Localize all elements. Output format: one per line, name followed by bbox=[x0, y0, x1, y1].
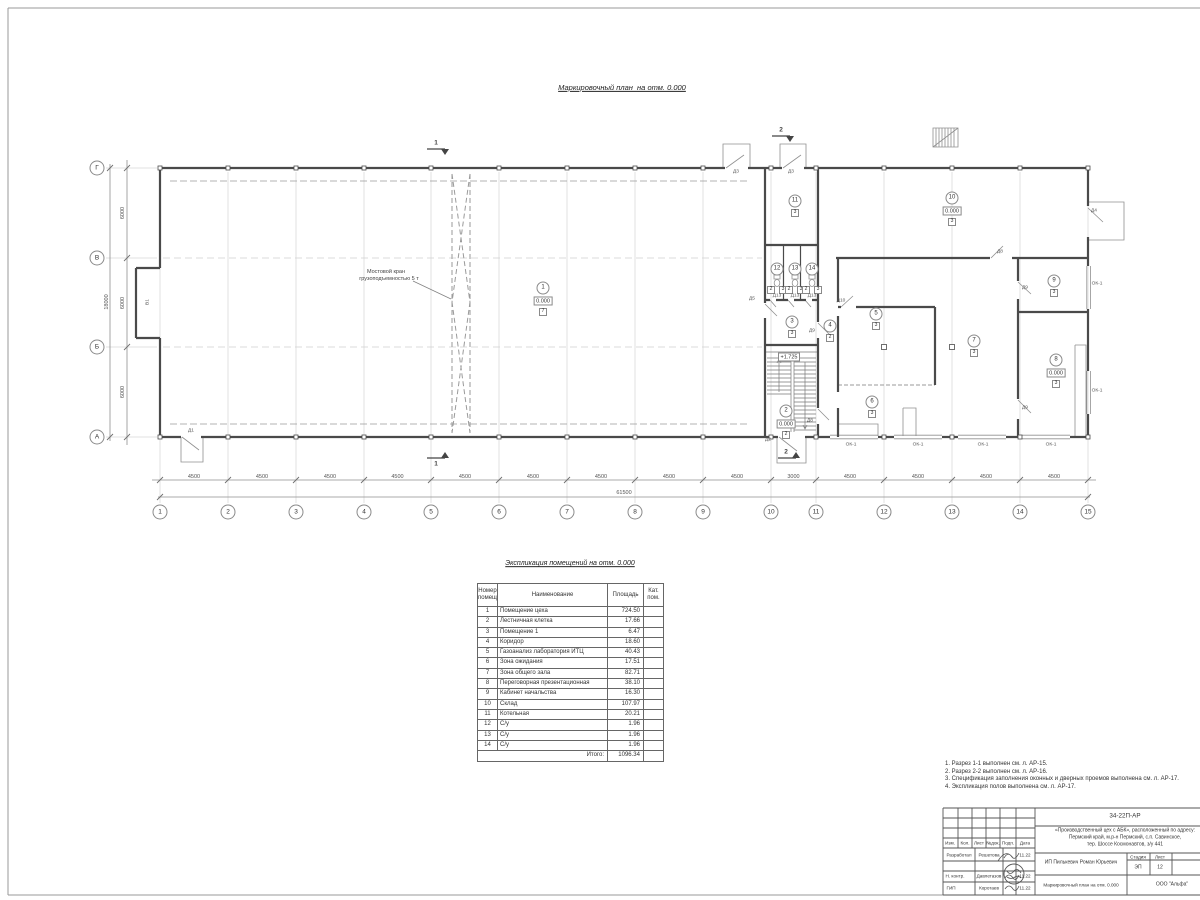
titleblock-role: Н. контр. bbox=[946, 873, 965, 878]
table-cell-cat bbox=[644, 668, 664, 678]
window-label: ОК-1 bbox=[1092, 281, 1103, 286]
titleblock-org-name: ООО "Альфа" bbox=[1156, 882, 1188, 888]
titleblock-name: Решетова bbox=[978, 852, 999, 857]
door-label: Д5 bbox=[749, 296, 755, 301]
window-label: ОК-1 bbox=[978, 442, 989, 447]
door-label: Д9 bbox=[809, 328, 815, 333]
door-label: Д13 bbox=[773, 293, 782, 298]
dim-total-label: 18000 bbox=[104, 294, 110, 309]
section-marker: 2 bbox=[784, 448, 788, 455]
grid-col-bubble: 10 bbox=[764, 505, 779, 520]
table-cell-area: 17.51 bbox=[608, 658, 644, 668]
table-cell-area: 38.10 bbox=[608, 679, 644, 689]
dim-label: 4500 bbox=[459, 473, 471, 479]
titleblock-stage-value: ЭП bbox=[1134, 865, 1141, 871]
table-row: 2Лестничная клетка17.66 bbox=[478, 617, 664, 627]
door-label: Д10 bbox=[837, 298, 846, 303]
titleblock-stage-label: Стадия bbox=[1130, 854, 1146, 859]
room-marker: 5 bbox=[870, 308, 883, 321]
table-cell-name: Газоанализ лаборатория ИТЦ bbox=[498, 648, 608, 658]
dim-label: 6000 bbox=[120, 207, 126, 219]
room-marker: 10 bbox=[946, 192, 959, 205]
titleblock-col-header: Изм. bbox=[945, 840, 955, 845]
table-cell-name: Переговорная презентационная bbox=[498, 679, 608, 689]
dim-label: 4500 bbox=[188, 473, 200, 479]
table-cell-name: Помещение 1 bbox=[498, 627, 608, 637]
titleblock-date: 11.22 bbox=[1019, 852, 1030, 857]
table-cell-cat bbox=[644, 730, 664, 740]
window-label: ОК-1 bbox=[1046, 442, 1057, 447]
note-4: 4. Экспликация полов выполнена см. л. АР… bbox=[945, 784, 1200, 792]
total-value: 1096.34 bbox=[608, 751, 644, 762]
titleblock-list-label: Лист bbox=[1155, 854, 1165, 859]
table-cell-num: 5 bbox=[478, 648, 498, 658]
table-cell-num: 2 bbox=[478, 617, 498, 627]
general-notes: 1. Разрез 1-1 выполнен см. л. АР-15. 2. … bbox=[945, 761, 1200, 791]
table-row: 14С/у1.96 bbox=[478, 740, 664, 750]
room-marker: 7 bbox=[968, 335, 981, 348]
table-cell-cat bbox=[644, 658, 664, 668]
dim-label: 4500 bbox=[256, 473, 268, 479]
grid-col-bubble: 2 bbox=[221, 505, 236, 520]
room-marker: 13 bbox=[789, 263, 802, 276]
room-elevation: 0.000 bbox=[777, 419, 796, 428]
table-cell-name: Лестничная клетка bbox=[498, 617, 608, 627]
table-row: 9Кабинет начальства16.30 bbox=[478, 689, 664, 699]
table-cell-num: 3 bbox=[478, 627, 498, 637]
room-marker: 11 bbox=[789, 195, 802, 208]
room-elevation: 0.000 bbox=[943, 206, 962, 215]
crane-label: грузоподъемностью 5 т bbox=[359, 276, 419, 282]
door-label: Д3 bbox=[788, 169, 794, 174]
titleblock-role: ГИП bbox=[946, 885, 955, 890]
room-marker: 2 bbox=[780, 405, 793, 418]
plan-title: Маркировочный план на отм. 0.000 bbox=[558, 84, 686, 92]
table-cell-num: 7 bbox=[478, 668, 498, 678]
dim-label: 6000 bbox=[120, 386, 126, 398]
table-cell-area: 107.97 bbox=[608, 699, 644, 709]
stair-elevation-label: +1.725 bbox=[778, 352, 800, 361]
table-cell-name: Кабинет начальства bbox=[498, 689, 608, 699]
table-row: 7Зона общего зала82.71 bbox=[478, 668, 664, 678]
table-cell-cat bbox=[644, 699, 664, 709]
room-elevation: 0.000 bbox=[534, 296, 553, 305]
room-marker: 1 bbox=[537, 282, 550, 295]
door-label: Д3 bbox=[733, 169, 739, 174]
room-marker: 12 bbox=[771, 263, 784, 276]
col-header-number-line2: помещ. bbox=[478, 595, 497, 602]
table-cell-area: 16.30 bbox=[608, 689, 644, 699]
room-marker: 14 bbox=[806, 263, 819, 276]
dim-label: 4500 bbox=[391, 473, 403, 479]
section-marker: 1 bbox=[434, 139, 438, 146]
grid-col-bubble: 7 bbox=[560, 505, 575, 520]
table-cell-num: 11 bbox=[478, 709, 498, 719]
titleblock-col-header: Кол. bbox=[960, 840, 969, 845]
table-cell-area: 724.50 bbox=[608, 607, 644, 617]
table-cell-num: 13 bbox=[478, 730, 498, 740]
table-cell-num: 4 bbox=[478, 637, 498, 647]
table-cell-area: 20.21 bbox=[608, 709, 644, 719]
col-header-number-line1: Номер bbox=[478, 588, 497, 595]
grid-col-bubble: 3 bbox=[289, 505, 304, 520]
door-label: Д13 bbox=[808, 293, 817, 298]
table-cell-num: 12 bbox=[478, 720, 498, 730]
titleblock-list-value: 12 bbox=[1157, 865, 1163, 871]
col-header-area: Площадь bbox=[608, 584, 644, 607]
dim-label: 4500 bbox=[324, 473, 336, 479]
dim-label: 3000 bbox=[787, 473, 799, 479]
dim-label: 6000 bbox=[120, 296, 126, 308]
room-category: 3 bbox=[791, 209, 799, 217]
table-cell-cat bbox=[644, 627, 664, 637]
dim-total-label: 61500 bbox=[616, 490, 631, 496]
grid-col-bubble: 9 bbox=[696, 505, 711, 520]
grid-col-bubble: 13 bbox=[945, 505, 960, 520]
table-cell-area: 6.47 bbox=[608, 627, 644, 637]
table-cell-name: С/у bbox=[498, 720, 608, 730]
titleblock-col-header: Лист bbox=[974, 840, 984, 845]
room-category: 3 bbox=[868, 410, 876, 418]
grid-col-bubble: 15 bbox=[1081, 505, 1096, 520]
gate-label: В1 bbox=[145, 299, 150, 305]
total-label: Итого: bbox=[478, 751, 608, 762]
grid-col-bubble: 1 bbox=[153, 505, 168, 520]
table-cell-cat bbox=[644, 607, 664, 617]
door-label: Д4 bbox=[1091, 208, 1097, 213]
table-cell-cat bbox=[644, 648, 664, 658]
titleblock-name: Давлетазов bbox=[977, 873, 1002, 878]
table-cell-cat bbox=[644, 720, 664, 730]
table-cell-name: Склад bbox=[498, 699, 608, 709]
room-marker: 4 bbox=[824, 320, 837, 333]
table-cell-num: 8 bbox=[478, 679, 498, 689]
titleblock-doc-number: 34-22П-АР bbox=[1109, 814, 1140, 821]
table-row: 1Помещение цеха724.50 bbox=[478, 607, 664, 617]
table-cell-area: 17.66 bbox=[608, 617, 644, 627]
table-row: 13С/у1.96 bbox=[478, 730, 664, 740]
table-row: 10Склад107.97 bbox=[478, 699, 664, 709]
crane-label: Мостовой кран bbox=[367, 269, 405, 275]
table-cell-area: 1.96 bbox=[608, 740, 644, 750]
titleblock-col-header: №док. bbox=[986, 840, 999, 845]
room-category: 3 bbox=[788, 330, 796, 338]
table-row: 5Газоанализ лаборатория ИТЦ40.43 bbox=[478, 648, 664, 658]
door-label: Д1 bbox=[188, 428, 194, 433]
table-cell-name: Коридор bbox=[498, 637, 608, 647]
door-label: Д9 bbox=[1022, 405, 1028, 410]
grid-row-bubble: В bbox=[90, 251, 105, 266]
titleblock-name: Коротаев bbox=[979, 885, 999, 890]
door-label: Д8 bbox=[807, 418, 813, 423]
room-category: 2 bbox=[782, 431, 790, 439]
grid-col-bubble: 4 bbox=[357, 505, 372, 520]
table-cell-cat bbox=[644, 637, 664, 647]
titleblock-date: 11.22 bbox=[1019, 873, 1030, 878]
table-row: 8Переговорная презентационная38.10 bbox=[478, 679, 664, 689]
total-cat-cell bbox=[644, 751, 664, 762]
table-cell-num: 14 bbox=[478, 740, 498, 750]
note-1: 1. Разрез 1-1 выполнен см. л. АР-15. bbox=[945, 761, 1200, 769]
table-cell-cat bbox=[644, 679, 664, 689]
titleblock-client: ИП Пилькевич Роман Юрьевич bbox=[1045, 860, 1118, 866]
table-cell-name: С/у bbox=[498, 730, 608, 740]
dim-label: 4500 bbox=[663, 473, 675, 479]
table-cell-name: Помещение цеха bbox=[498, 607, 608, 617]
room-category: 2 bbox=[826, 334, 834, 342]
dim-label: 4500 bbox=[980, 473, 992, 479]
table-row: 12С/у1.96 bbox=[478, 720, 664, 730]
titleblock-sheet-title: Маркировочный план на отм. 0.000 bbox=[1043, 882, 1118, 887]
table-cell-cat bbox=[644, 689, 664, 699]
table-cell-area: 40.43 bbox=[608, 648, 644, 658]
table-total-row: Итого: 1096.34 bbox=[478, 751, 664, 762]
dim-label: 4500 bbox=[912, 473, 924, 479]
window-label: ОК-1 bbox=[1092, 388, 1103, 393]
titleblock-col-header: Дата bbox=[1020, 840, 1030, 845]
note-2: 2. Разрез 2-2 выполнен см. л. АР-16. bbox=[945, 769, 1200, 777]
room-schedule-table: Номер помещ. Наименование Площадь Кат. п… bbox=[477, 583, 664, 762]
section-marker: 2 bbox=[779, 126, 783, 133]
room-elevation: 0.000 bbox=[1047, 368, 1066, 377]
section-marker: 1 bbox=[434, 460, 438, 467]
grid-row-bubble: А bbox=[90, 430, 105, 445]
dim-label: 4500 bbox=[1048, 473, 1060, 479]
table-cell-area: 82.71 bbox=[608, 668, 644, 678]
table-cell-name: Зона ожидания bbox=[498, 658, 608, 668]
grid-col-bubble: 14 bbox=[1013, 505, 1028, 520]
table-cell-cat bbox=[644, 709, 664, 719]
table-row: 3Помещение 16.47 bbox=[478, 627, 664, 637]
titleblock-project-name: тер. Шоссе Космонавтов, з/у 441 bbox=[1087, 842, 1163, 848]
table-row: 4Коридор18.60 bbox=[478, 637, 664, 647]
col-header-cat: Кат. пом. bbox=[644, 584, 664, 607]
room-marker: 6 bbox=[866, 396, 879, 409]
grid-col-bubble: 8 bbox=[628, 505, 643, 520]
table-cell-cat bbox=[644, 740, 664, 750]
table-cell-area: 1.96 bbox=[608, 720, 644, 730]
table-cell-area: 1.96 bbox=[608, 730, 644, 740]
grid-row-bubble: Г bbox=[90, 161, 105, 176]
col-header-name: Наименование bbox=[498, 584, 608, 607]
door-label: Д13 bbox=[791, 293, 800, 298]
table-cell-num: 6 bbox=[478, 658, 498, 668]
grid-col-bubble: 11 bbox=[809, 505, 824, 520]
door-label: Д2 bbox=[765, 437, 771, 442]
col-header-cat-line1: Кат. bbox=[644, 588, 663, 595]
room-category: 3 bbox=[872, 322, 880, 330]
table-row: 11Котельная20.21 bbox=[478, 709, 664, 719]
grid-row-bubble: Б bbox=[90, 340, 105, 355]
grid-col-bubble: 5 bbox=[424, 505, 439, 520]
drawing-sheet: { "page": { "plan_title": "Маркировочный… bbox=[0, 0, 1200, 900]
titleblock-project-name: «Производственный цех с АБК», расположен… bbox=[1055, 828, 1195, 834]
room-category: 3 bbox=[1050, 289, 1058, 297]
table-cell-num: 9 bbox=[478, 689, 498, 699]
table-cell-area: 18.60 bbox=[608, 637, 644, 647]
grid-col-bubble: 6 bbox=[492, 505, 507, 520]
titleblock-col-header: Подп. bbox=[1002, 840, 1014, 845]
room-category: 3 bbox=[1052, 380, 1060, 388]
table-header-row: Номер помещ. Наименование Площадь Кат. п… bbox=[478, 584, 664, 607]
col-header-cat-line2: пом. bbox=[644, 595, 663, 602]
titleblock-date: 11.22 bbox=[1019, 885, 1030, 890]
room-category: 3 bbox=[970, 349, 978, 357]
grid-col-bubble: 12 bbox=[877, 505, 892, 520]
titleblock-role: Разработал bbox=[946, 852, 971, 857]
table-cell-name: С/у bbox=[498, 740, 608, 750]
room-category: 3 bbox=[948, 218, 956, 226]
door-label: Д8 bbox=[997, 249, 1003, 254]
dim-label: 4500 bbox=[731, 473, 743, 479]
table-title: Экспликация помещений на отм. 0.000 bbox=[505, 560, 634, 568]
window-label: ОК-1 bbox=[913, 442, 924, 447]
table-cell-num: 10 bbox=[478, 699, 498, 709]
dim-label: 4500 bbox=[595, 473, 607, 479]
table-cell-num: 1 bbox=[478, 607, 498, 617]
table-cell-name: Котельная bbox=[498, 709, 608, 719]
table-cell-name: Зона общего зала bbox=[498, 668, 608, 678]
dim-label: 4500 bbox=[844, 473, 856, 479]
room-category: 7 bbox=[539, 308, 547, 316]
table-row: 6Зона ожидания17.51 bbox=[478, 658, 664, 668]
titleblock-project-name: Пермский край, м.р-н Пермский, с.п. Сави… bbox=[1069, 835, 1181, 841]
dim-label: 4500 bbox=[527, 473, 539, 479]
door-label: Д9 bbox=[1022, 285, 1028, 290]
room-marker: 3 bbox=[786, 316, 799, 329]
room-marker: 8 bbox=[1050, 354, 1063, 367]
window-label: ОК-1 bbox=[846, 442, 857, 447]
note-3: 3. Спецификация заполнения оконных и две… bbox=[945, 776, 1200, 784]
table-cell-cat bbox=[644, 617, 664, 627]
room-marker: 9 bbox=[1048, 275, 1061, 288]
col-header-number: Номер помещ. bbox=[478, 584, 498, 607]
